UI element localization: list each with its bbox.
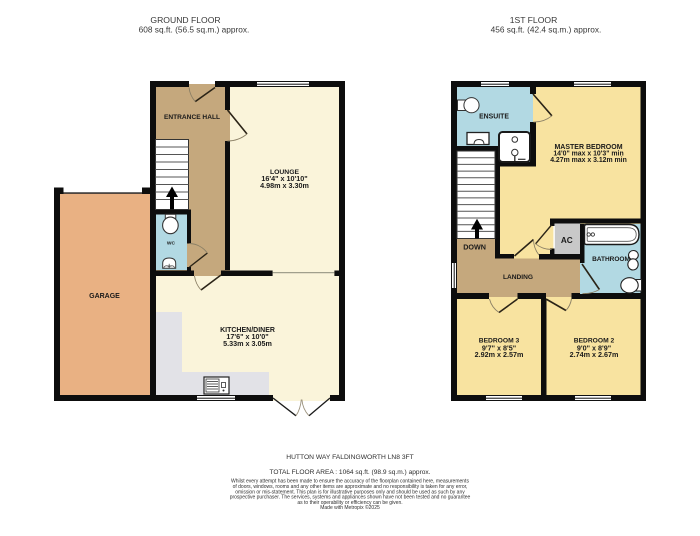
svg-text:LANDING: LANDING [503,274,533,281]
svg-text:ENTRANCE HALL: ENTRANCE HALL [164,114,220,121]
svg-text:DOWN: DOWN [463,243,486,252]
svg-text:2.92m x 2.57m: 2.92m x 2.57m [475,350,524,359]
svg-text:AC: AC [561,236,573,245]
svg-text:Made with Metropix ©2025: Made with Metropix ©2025 [320,504,380,511]
svg-text:HUTTON WAY FALDINGWORTH LN8 3F: HUTTON WAY FALDINGWORTH LN8 3FT [286,454,413,461]
svg-text:WC: WC [167,241,176,247]
svg-text:GARAGE: GARAGE [89,293,120,300]
svg-text:4.27m max x 3.12m min: 4.27m max x 3.12m min [550,157,627,164]
svg-text:4.98m x 3.30m: 4.98m x 3.30m [260,181,309,190]
svg-text:BATHROOM: BATHROOM [592,256,630,263]
svg-text:608 sq.ft. (56.5 sq.m.) approx: 608 sq.ft. (56.5 sq.m.) approx. [139,25,250,35]
svg-text:456 sq.ft. (42.4 sq.m.) approx: 456 sq.ft. (42.4 sq.m.) approx. [491,25,602,35]
svg-text:5.33m x 3.05m: 5.33m x 3.05m [223,339,272,348]
svg-text:2.74m x 2.67m: 2.74m x 2.67m [570,350,619,359]
svg-text:TOTAL FLOOR AREA : 1064 sq.ft.: TOTAL FLOOR AREA : 1064 sq.ft. (98.9 sq.… [269,469,430,476]
svg-text:ENSUITE: ENSUITE [479,113,509,120]
